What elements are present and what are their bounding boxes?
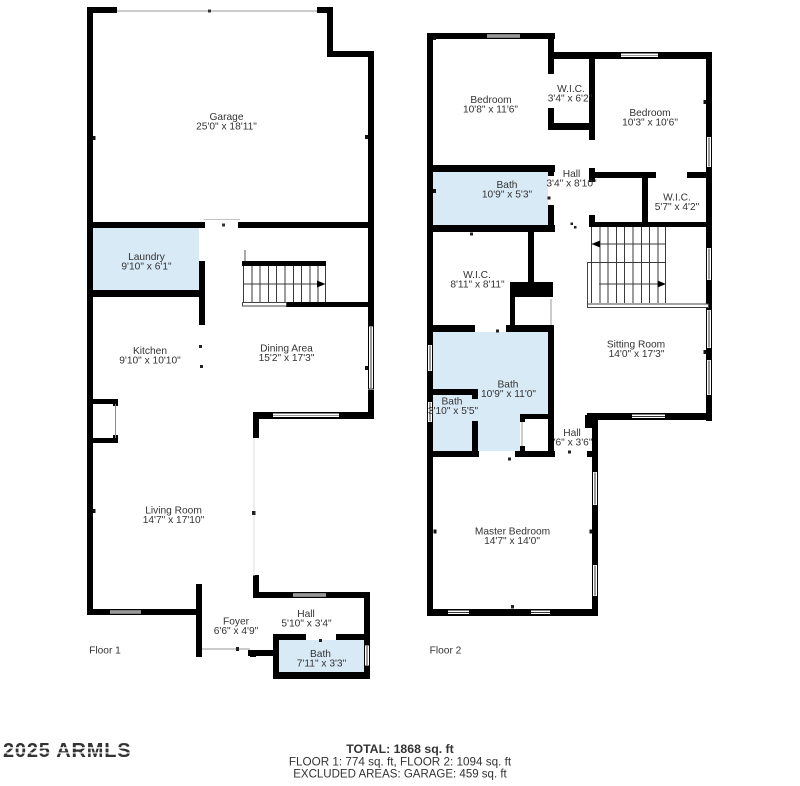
- svg-text:'6" x 3'6": '6" x 3'6": [554, 438, 593, 449]
- svg-text:10'8" x 11'6": 10'8" x 11'6": [463, 105, 518, 116]
- svg-text:Floor 1: Floor 1: [89, 646, 121, 657]
- svg-text:14'0" x 17'3": 14'0" x 17'3": [609, 349, 665, 360]
- svg-text:Floor 2: Floor 2: [430, 646, 462, 657]
- svg-text:EXCLUDED AREAS: GARAGE: 459 sq: EXCLUDED AREAS: GARAGE: 459 sq. ft: [293, 769, 507, 781]
- svg-text:10'9" x 5'3": 10'9" x 5'3": [482, 190, 533, 201]
- svg-text:14'7" x 17'10": 14'7" x 17'10": [143, 515, 205, 526]
- svg-text:3'4" x 8'10": 3'4" x 8'10": [546, 179, 597, 190]
- svg-text:2025 ARMLS: 2025 ARMLS: [3, 740, 131, 762]
- svg-text:FLOOR 1: 774 sq. ft, FLOOR 2:: FLOOR 1: 774 sq. ft, FLOOR 2: 1094 sq. f…: [289, 756, 512, 769]
- svg-text:5'7" x 4'2": 5'7" x 4'2": [655, 202, 700, 213]
- svg-text:3'10" x 5'5": 3'10" x 5'5": [428, 406, 479, 417]
- svg-text:15'2" x 17'3": 15'2" x 17'3": [259, 353, 315, 364]
- svg-text:8'11" x 8'11": 8'11" x 8'11": [450, 280, 505, 291]
- svg-text:9'10" x 10'10": 9'10" x 10'10": [119, 356, 181, 367]
- svg-text:10'9" x 11'0": 10'9" x 11'0": [481, 389, 536, 400]
- svg-text:5'10" x 3'4": 5'10" x 3'4": [281, 619, 332, 630]
- svg-text:6'6" x 4'9": 6'6" x 4'9": [214, 626, 259, 637]
- svg-text:3'4" x 6'2": 3'4" x 6'2": [548, 94, 593, 105]
- svg-text:9'10" x 6'1": 9'10" x 6'1": [121, 262, 172, 273]
- svg-text:10'3" x 10'6": 10'3" x 10'6": [622, 118, 678, 129]
- svg-text:7'11" x 3'3": 7'11" x 3'3": [297, 659, 347, 670]
- svg-text:14'7" x 14'0": 14'7" x 14'0": [484, 536, 540, 547]
- svg-text:25'0" x 18'11": 25'0" x 18'11": [196, 122, 257, 133]
- svg-text:TOTAL: 1868 sq. ft: TOTAL: 1868 sq. ft: [346, 742, 454, 756]
